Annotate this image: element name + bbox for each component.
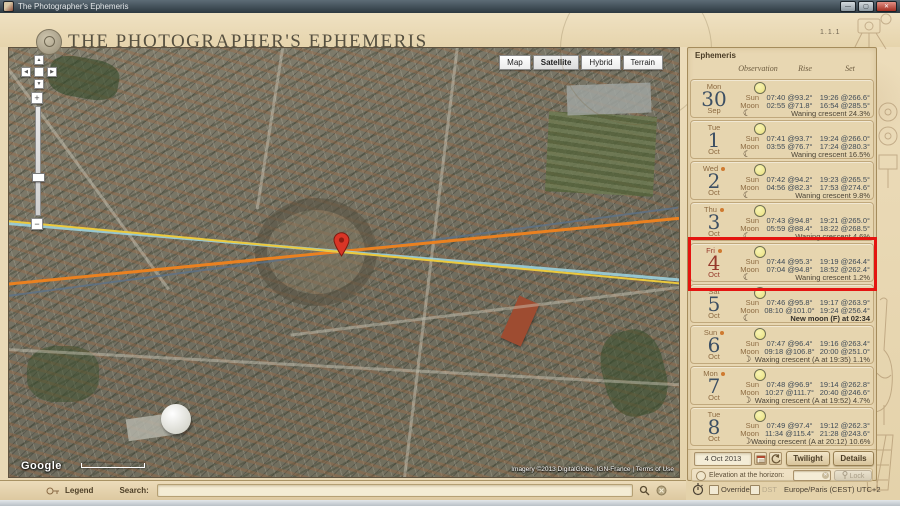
ephemeris-day-row[interactable]: Thu 3 Oct Sun 07:43 @94.8° 19:21 @265.0°… (690, 202, 874, 241)
map-park (46, 52, 122, 104)
moon-phase-text: Waxing crescent (A at 19:52) 4.7% (755, 396, 870, 405)
moon-phase-text: Waxing crescent (A at 20:12) 10.6% (751, 437, 870, 446)
col-set: Set (826, 64, 874, 73)
moon-icon: ☾ (743, 438, 751, 446)
month-name: Oct (691, 393, 737, 402)
map-park (594, 324, 675, 422)
legend-label[interactable]: Legend (65, 486, 93, 495)
moon-icon: ☾ (743, 192, 751, 200)
timezone-row: Override DST Europe/Paris (CEST) UTC+2 (687, 483, 877, 497)
month-name: Oct (691, 434, 737, 443)
camera-sketch (848, 11, 896, 51)
col-rise: Rise (780, 64, 830, 73)
dst-checkbox[interactable] (750, 485, 760, 495)
page-title: THE PHOTOGRAPHER'S EPHEMERIS (68, 31, 428, 53)
pan-up-button[interactable]: ▲ (34, 55, 44, 65)
map-road (8, 348, 680, 388)
ephemeris-day-row[interactable]: Tue 1 Oct Sun 07:41 @93.7° 19:24 @266.0°… (690, 120, 874, 159)
legend-key-icon[interactable] (46, 486, 60, 496)
pan-right-button[interactable]: ▶ (47, 67, 57, 77)
ephemeris-day-row[interactable]: Sun 6 Oct Sun 07:47 @96.4° 19:16 @263.4°… (690, 325, 874, 364)
elevation-row: Elevation at the horizon: ✕ Lock (691, 468, 873, 482)
map-attribution[interactable]: Imagery ©2013 DigitalGlobe, IGN-France |… (511, 466, 674, 473)
pan-left-button[interactable]: ◀ (21, 67, 31, 77)
ephemeris-day-row[interactable]: Mon 7 Oct Sun 07:48 @96.9° 19:14 @262.8°… (690, 366, 874, 405)
ephemeris-day-row[interactable]: Mon 30 Sep Sun 07:40 @93.2° 19:26 @266.6… (690, 79, 874, 118)
date-toolbar: 4 Oct 2013 Twilight Details (688, 449, 876, 467)
search-input[interactable] (157, 484, 633, 497)
taskbar-edge (0, 500, 900, 506)
map-scale-bar (81, 463, 145, 468)
close-button[interactable]: ✕ (876, 1, 897, 12)
clear-elevation-icon[interactable]: ✕ (822, 472, 829, 479)
elevation-label: Elevation at the horizon: (709, 472, 784, 479)
moon-phase-text: Waning crescent 16.5% (791, 150, 870, 159)
selection-highlight-annotation (688, 237, 877, 291)
moon-phase-text: Waning crescent 9.8% (795, 191, 870, 200)
lock-label: Lock (850, 473, 865, 480)
map-pan-control: ▲ ◀ ▶ ▼ (21, 55, 57, 91)
override-checkbox[interactable] (709, 485, 719, 495)
override-label: Override (721, 485, 750, 494)
elevation-radio[interactable] (696, 471, 706, 481)
month-name: Oct (691, 311, 737, 320)
moon-icon: ☾ (743, 110, 751, 118)
dst-label: DST (762, 485, 777, 494)
pan-center-button[interactable] (34, 67, 44, 77)
calendar-icon[interactable] (754, 452, 767, 465)
ephemeris-day-row[interactable]: Tue 8 Oct Sun 07:49 @97.4° 19:12 @262.3°… (690, 407, 874, 446)
map-zoom-control: + − (31, 92, 43, 230)
date-input[interactable]: 4 Oct 2013 (694, 452, 752, 466)
ephemeris-day-row[interactable]: Wed 2 Oct Sun 07:42 @94.2° 19:23 @265.5°… (690, 161, 874, 200)
search-icon[interactable] (639, 485, 650, 496)
app-icon (3, 1, 14, 12)
moon-phase-text: Waning crescent 24.3% (791, 109, 870, 118)
month-name: Oct (691, 352, 737, 361)
pan-down-button[interactable]: ▼ (34, 79, 44, 89)
moon-icon: ☾ (743, 356, 751, 364)
lock-button[interactable]: Lock (834, 470, 872, 481)
tpe-logo (36, 29, 62, 55)
moon-phase-text: Waxing crescent (A at 19:35) 1.1% (755, 355, 870, 364)
map-road (256, 47, 286, 209)
panel-title: Ephemeris (695, 51, 736, 60)
app-header: THE PHOTOGRAPHER'S EPHEMERIS 1.1.1 (0, 13, 900, 47)
map-pin[interactable] (333, 232, 350, 257)
elevation-input[interactable]: ✕ (793, 470, 831, 481)
white-dome-building (161, 404, 191, 434)
moon-icon: ☾ (743, 151, 751, 159)
zoom-out-button[interactable]: − (31, 218, 43, 230)
moon-phase-text: New moon (F) at 02:34 (790, 314, 870, 323)
details-button[interactable]: Details (833, 451, 874, 466)
window-title: The Photographer's Ephemeris (18, 2, 838, 11)
minimize-button[interactable]: — (840, 1, 856, 12)
month-name: Oct (691, 147, 737, 156)
moon-icon: ☾ (743, 397, 751, 405)
moon-icon: ☾ (743, 315, 751, 323)
twilight-button[interactable]: Twilight (786, 451, 830, 466)
month-name: Oct (691, 188, 737, 197)
film-reel-sketch (876, 100, 900, 190)
column-headers: Observation Rise Set (688, 64, 876, 76)
map-type-map[interactable]: Map (499, 55, 531, 70)
window-titlebar[interactable]: The Photographer's Ephemeris — ▢ ✕ (0, 0, 900, 13)
search-label: Search: (119, 486, 148, 495)
col-observation: Observation (728, 64, 788, 73)
reset-to-today-icon[interactable] (769, 452, 782, 465)
map-canvas[interactable]: ▲ ◀ ▶ ▼ + − Map Satellite Hybrid Terrain… (8, 47, 680, 478)
zoom-slider-track[interactable] (35, 106, 41, 216)
zoom-in-button[interactable]: + (31, 92, 43, 104)
timezone-label: Europe/Paris (CEST) UTC+2 (784, 485, 881, 494)
bottom-toolbar: Legend Search: (0, 480, 686, 500)
zoom-slider-handle[interactable] (32, 173, 45, 182)
google-logo: Google (21, 460, 62, 472)
maximize-button[interactable]: ▢ (858, 1, 874, 12)
stopwatch-icon[interactable] (692, 483, 704, 496)
clear-search-icon[interactable] (656, 485, 667, 496)
version-label: 1.1.1 (820, 29, 841, 36)
application-window: The Photographer's Ephemeris — ▢ ✕ THE P… (0, 0, 900, 506)
month-name: Sep (691, 106, 737, 115)
